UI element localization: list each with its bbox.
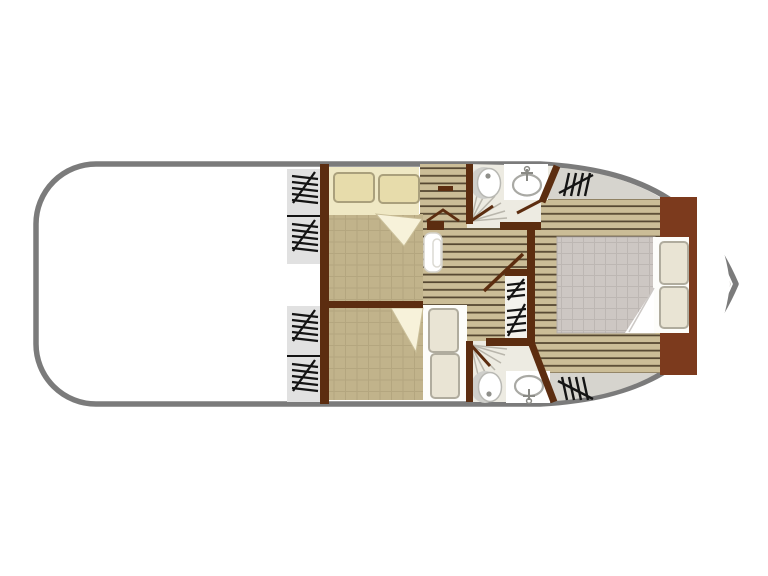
pillow xyxy=(660,242,688,284)
pillow xyxy=(660,287,688,328)
companionway-stairs xyxy=(505,276,527,338)
wall-bathroom-bottom-left xyxy=(466,341,473,402)
floorplan-canvas xyxy=(0,0,768,576)
side-steps-bottom xyxy=(287,306,322,402)
wall-cabins-left xyxy=(320,164,329,404)
pillow xyxy=(431,354,459,398)
guest-cabin-top xyxy=(329,167,423,303)
guest-cabin-bottom xyxy=(329,305,467,400)
wall-corridor-stub xyxy=(427,221,444,230)
wall-bathroom-bottom-top xyxy=(486,338,535,346)
corridor-entry-steps xyxy=(424,233,442,272)
wall-corridor-master-lower xyxy=(527,272,535,342)
bow-tip-area xyxy=(694,196,730,372)
wall-corridor-bar xyxy=(438,186,453,191)
wall-corridor-master-upper xyxy=(527,228,535,272)
master-bed xyxy=(557,237,689,333)
wall-cabin-divider xyxy=(320,301,423,308)
pillow xyxy=(379,175,419,203)
pillow xyxy=(429,309,458,352)
wall-bathroom-top-left xyxy=(466,164,473,224)
side-steps-top xyxy=(287,169,322,264)
pillow xyxy=(334,173,374,202)
boat-floorplan xyxy=(0,0,768,576)
